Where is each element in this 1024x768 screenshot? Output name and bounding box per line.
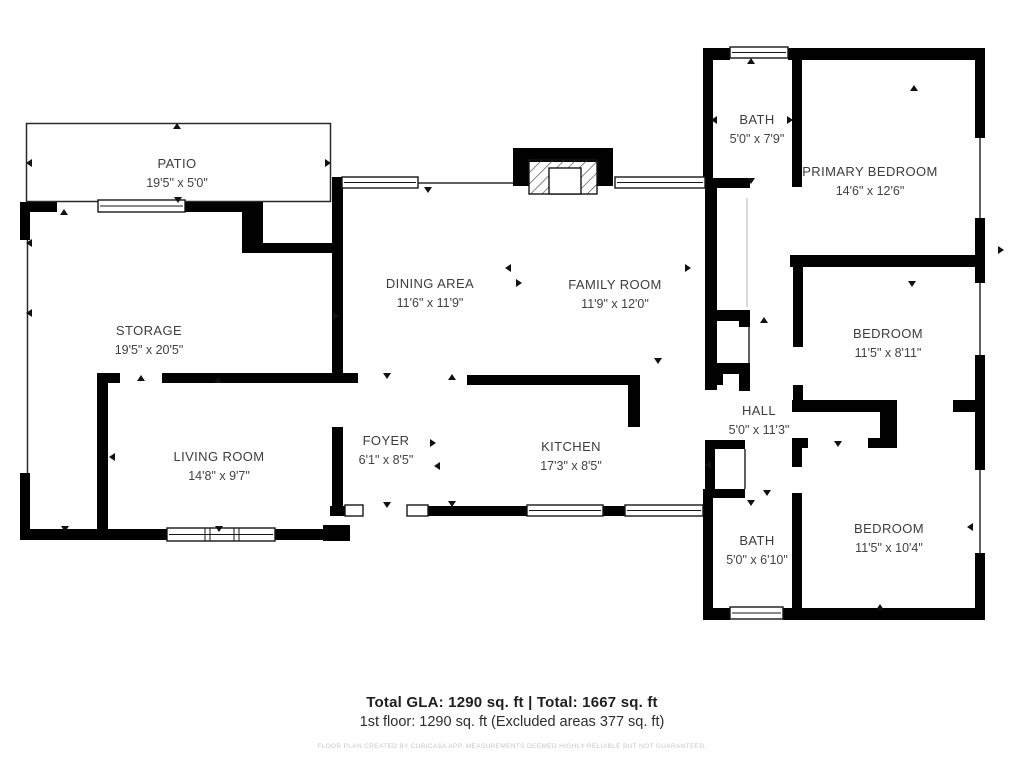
plan-footer: Total GLA: 1290 sq. ft | Total: 1667 sq.… [0, 694, 1024, 750]
room-name: KITCHEN [540, 438, 602, 456]
room-label-bedroom-mid: BEDROOM 11'5" x 8'11" [853, 325, 923, 362]
room-dims: 19'5" x 20'5" [115, 341, 184, 359]
room-label-dining-area: DINING AREA 11'6" x 11'9" [386, 275, 474, 312]
room-label-bath-lower: BATH 5'0" x 6'10" [726, 532, 788, 569]
floor-area-line: 1st floor: 1290 sq. ft (Excluded areas 3… [0, 714, 1024, 730]
room-label-hall: HALL 5'0" x 11'3" [729, 402, 790, 439]
room-dims: 5'0" x 6'10" [726, 551, 788, 569]
room-name: STORAGE [115, 322, 184, 340]
room-dims: 11'5" x 10'4" [854, 539, 924, 557]
room-name: FAMILY ROOM [568, 276, 662, 294]
floor-plan-page: PATIO 19'5" x 5'0" STORAGE 19'5" x 20'5"… [0, 0, 1024, 768]
room-label-family-room: FAMILY ROOM 11'9" x 12'0" [568, 276, 662, 313]
room-name: HALL [729, 402, 790, 420]
room-dims: 14'6" x 12'6" [802, 182, 938, 200]
room-dims: 14'8" x 9'7" [173, 467, 264, 485]
room-label-bedroom-lower: BEDROOM 11'5" x 10'4" [854, 520, 924, 557]
fireplace-firebox [549, 168, 581, 194]
room-label-storage: STORAGE 19'5" x 20'5" [115, 322, 184, 359]
room-dims: 19'5" x 5'0" [146, 174, 208, 192]
room-dims: 17'3" x 8'5" [540, 457, 602, 475]
room-dims: 11'5" x 8'11" [853, 344, 923, 362]
total-area-line: Total GLA: 1290 sq. ft | Total: 1667 sq.… [0, 694, 1024, 711]
floor-plan-drawing [0, 0, 1024, 768]
room-dims: 5'0" x 7'9" [730, 130, 785, 148]
room-dims: 5'0" x 11'3" [729, 421, 790, 439]
room-name: PATIO [146, 155, 208, 173]
room-name: BEDROOM [854, 520, 924, 538]
room-name: FOYER [359, 432, 414, 450]
room-name: BATH [726, 532, 788, 550]
room-name: BEDROOM [853, 325, 923, 343]
room-name: BATH [730, 111, 785, 129]
room-name: PRIMARY BEDROOM [802, 163, 938, 181]
room-label-kitchen: KITCHEN 17'3" x 8'5" [540, 438, 602, 475]
room-dims: 11'6" x 11'9" [386, 294, 474, 312]
disclaimer-text: FLOOR PLAN CREATED BY CUBICASA APP. MEAS… [0, 743, 1024, 750]
room-label-primary-bedroom: PRIMARY BEDROOM 14'6" x 12'6" [802, 163, 938, 200]
windows [98, 47, 788, 619]
room-dims: 6'1" x 8'5" [359, 451, 414, 469]
room-name: LIVING ROOM [173, 448, 264, 466]
room-label-patio: PATIO 19'5" x 5'0" [146, 155, 208, 192]
room-dims: 11'9" x 12'0" [568, 295, 662, 313]
room-label-foyer: FOYER 6'1" x 8'5" [359, 432, 414, 469]
room-label-bath-upper: BATH 5'0" x 7'9" [730, 111, 785, 148]
room-label-living-room: LIVING ROOM 14'8" x 9'7" [173, 448, 264, 485]
room-name: DINING AREA [386, 275, 474, 293]
